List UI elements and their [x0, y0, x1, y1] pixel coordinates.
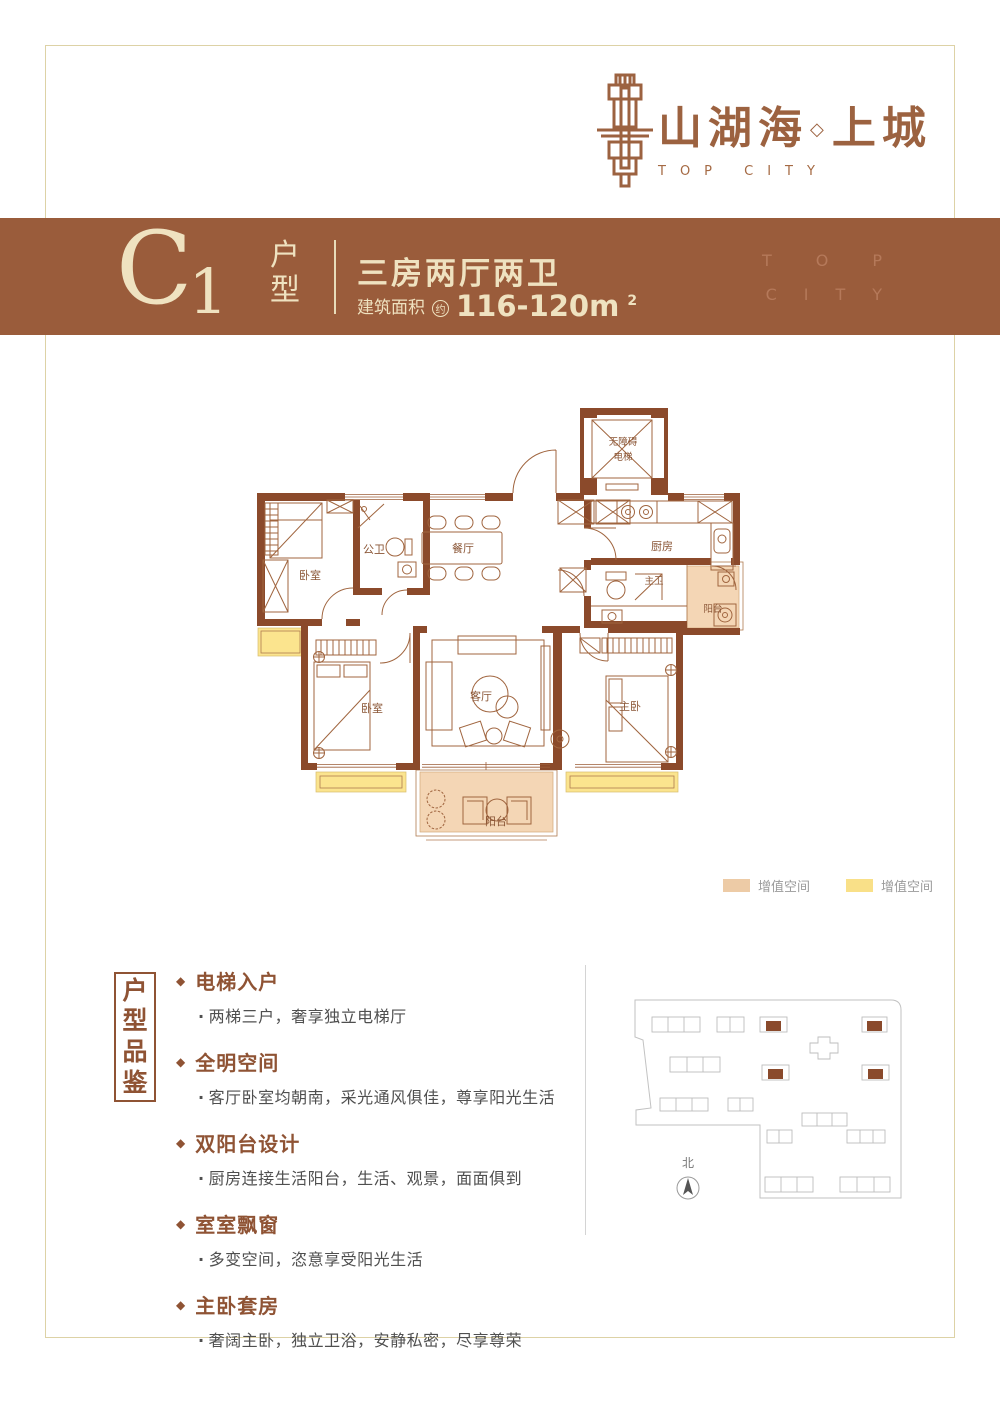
diamond-bullet-icon: ◆ — [176, 1055, 185, 1069]
feature-desc: ·奢阔主卧，独立卫浴，安静私密，尽享尊荣 — [198, 1327, 576, 1351]
room-label-dining: 餐厅 — [452, 541, 474, 555]
diamond-bullet-icon: ◆ — [176, 1217, 185, 1231]
feature-item: ◆主卧套房 ·奢阔主卧，独立卫浴，安静私密，尽享尊荣 — [176, 1290, 576, 1351]
feature-item: ◆双阳台设计 ·厨房连接生活阳台，生活、观景，面面俱到 — [176, 1128, 576, 1189]
diamond-bullet-icon: ◆ — [176, 974, 185, 988]
room-label-master: 主卧 — [619, 700, 641, 713]
unit-type-label: 户 型 — [270, 240, 300, 306]
feature-item: ◆电梯入户 ·两梯三户，奢享独立电梯厅 — [176, 966, 576, 1027]
legend-item-yellow: 增值空间 — [846, 876, 933, 895]
room-label-living: 客厅 — [470, 689, 492, 703]
tower-logo-icon — [595, 72, 655, 190]
room-label-kitchen: 厨房 — [651, 540, 673, 553]
room-label-elevator: 无障碍 — [609, 436, 638, 448]
brand-name-en: TOP CITY — [658, 164, 932, 179]
feature-desc: ·多变空间，恣意享受阳光生活 — [198, 1246, 576, 1270]
unit-area: 建筑面积 约 116-120m 2 — [357, 292, 636, 321]
feature-title: 全明空间 — [195, 1047, 279, 1076]
feature-item: ◆室室飘窗 ·多变空间，恣意享受阳光生活 — [176, 1209, 576, 1270]
north-label: 北 — [682, 1156, 694, 1170]
room-label-master-bath: 主卫 — [644, 575, 664, 587]
feature-title: 双阳台设计 — [195, 1128, 300, 1157]
section-divider — [585, 965, 586, 1235]
logo-separator-icon: ◇ — [810, 119, 830, 140]
section-title-box: 户 型 品 鉴 — [114, 972, 156, 1102]
area-label: 建筑面积 — [357, 293, 425, 321]
banner-watermark: TOP CITY — [762, 244, 882, 311]
banner-divider — [334, 240, 336, 314]
feature-list: ◆电梯入户 ·两梯三户，奢享独立电梯厅 ◆全明空间 ·客厅卧室均朝南，采光通风俱… — [176, 966, 576, 1371]
room-label-elevator-2: 电梯 — [613, 451, 633, 463]
room-label-guest-bath: 公卫 — [363, 543, 385, 556]
brand-name: 山湖海◇上城 — [658, 92, 932, 156]
unit-banner: C1 户 型 三房两厅两卫 建筑面积 约 116-120m 2 TOP CITY — [0, 218, 1000, 335]
feature-item: ◆全明空间 ·客厅卧室均朝南，采光通风俱佳，尊享阳光生活 — [176, 1047, 576, 1108]
unit-code: C1 — [116, 210, 232, 327]
brand-logo: 山湖海◇上城 TOP CITY — [590, 70, 940, 190]
feature-desc: ·两梯三户，奢享独立电梯厅 — [198, 1003, 576, 1027]
site-map: 北 — [625, 985, 915, 1220]
diamond-bullet-icon: ◆ — [176, 1298, 185, 1312]
area-value: 116-120m — [456, 292, 619, 321]
room-label-bedroom-top: 卧室 — [299, 568, 321, 582]
feature-title: 电梯入户 — [195, 966, 279, 995]
feature-desc: ·厨房连接生活阳台，生活、观景，面面俱到 — [198, 1165, 576, 1189]
feature-title: 主卧套房 — [195, 1290, 279, 1319]
north-indicator: 北 — [677, 1156, 699, 1199]
room-label-balcony-side: 阳台 — [703, 603, 722, 615]
feature-desc: ·客厅卧室均朝南，采光通风俱佳，尊享阳光生活 — [198, 1084, 576, 1108]
legend-item-orange: 增值空间 — [723, 876, 810, 895]
room-label-balcony-bottom: 阳台 — [485, 814, 507, 828]
feature-title: 室室飘窗 — [195, 1209, 279, 1238]
floorplan: 无障碍 电梯 卧室 公卫 餐厅 厨房 主卫 阳台 卧室 客厅 主卧 阳台 — [250, 400, 750, 850]
room-label-bedroom-left: 卧室 — [361, 701, 383, 715]
approx-circle-icon: 约 — [432, 300, 449, 317]
legend-swatch-yellow — [846, 879, 873, 892]
legend-swatch-orange — [723, 879, 750, 892]
unit-code-letter: C — [116, 210, 193, 327]
diamond-bullet-icon: ◆ — [176, 1136, 185, 1150]
area-exponent: 2 — [627, 293, 637, 309]
legend: 增值空间 增值空间 — [723, 876, 933, 895]
unit-headline: 三房两厅两卫 — [357, 248, 561, 293]
unit-code-number: 1 — [189, 255, 228, 328]
